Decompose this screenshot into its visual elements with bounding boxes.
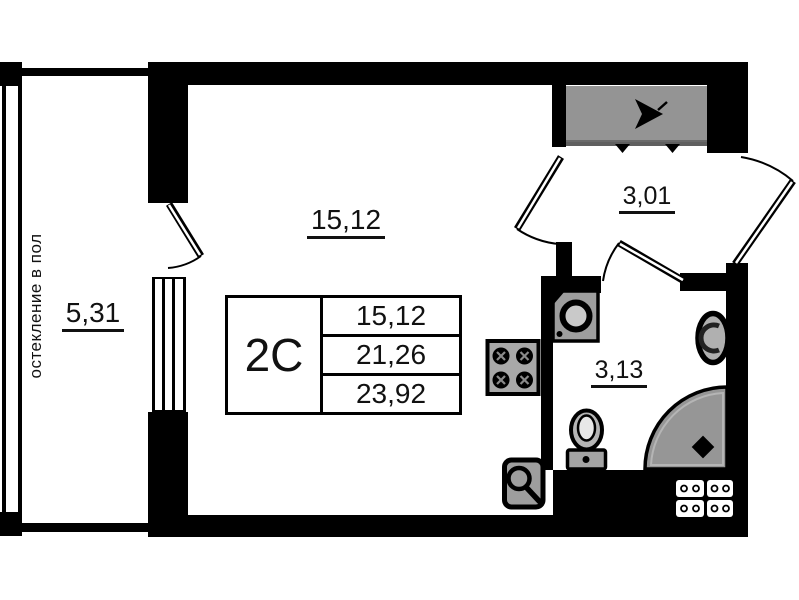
unit-total-area: 21,26 xyxy=(323,334,459,373)
unit-total-area-with-balcony: 23,92 xyxy=(323,373,459,412)
balcony-area-label: 5,31 xyxy=(53,297,133,329)
unit-living-area: 15,12 xyxy=(323,298,459,334)
vent-grilles-icon xyxy=(676,480,733,517)
stove-icon xyxy=(488,341,539,394)
toilet-icon xyxy=(568,411,606,470)
kitchen-sink-icon xyxy=(505,460,544,507)
hall-area-label: 3,01 xyxy=(607,182,687,211)
unit-area-table: 2С 15,12 21,26 23,92 xyxy=(225,295,462,415)
washing-machine-icon xyxy=(553,291,598,341)
entrance-door-icon xyxy=(735,157,793,264)
entry-arrow-icon xyxy=(635,99,667,129)
bath-sink-icon xyxy=(698,314,728,363)
living-room-area-label: 15,12 xyxy=(300,204,392,236)
hall-door-icon xyxy=(517,157,561,244)
entry-hinge-marks xyxy=(615,144,680,153)
floor-plan: 15,12 5,31 3,01 3,13 остекление в пол 2С… xyxy=(0,0,799,600)
shower-icon xyxy=(645,387,727,469)
bathroom-area-label: 3,13 xyxy=(581,356,657,385)
bathroom-door-icon xyxy=(603,243,684,281)
unit-type-code: 2С xyxy=(228,298,323,412)
balcony-door-icon xyxy=(168,204,201,268)
glazing-note-label: остекление в пол xyxy=(26,208,46,404)
balcony-window-icon xyxy=(152,277,186,412)
